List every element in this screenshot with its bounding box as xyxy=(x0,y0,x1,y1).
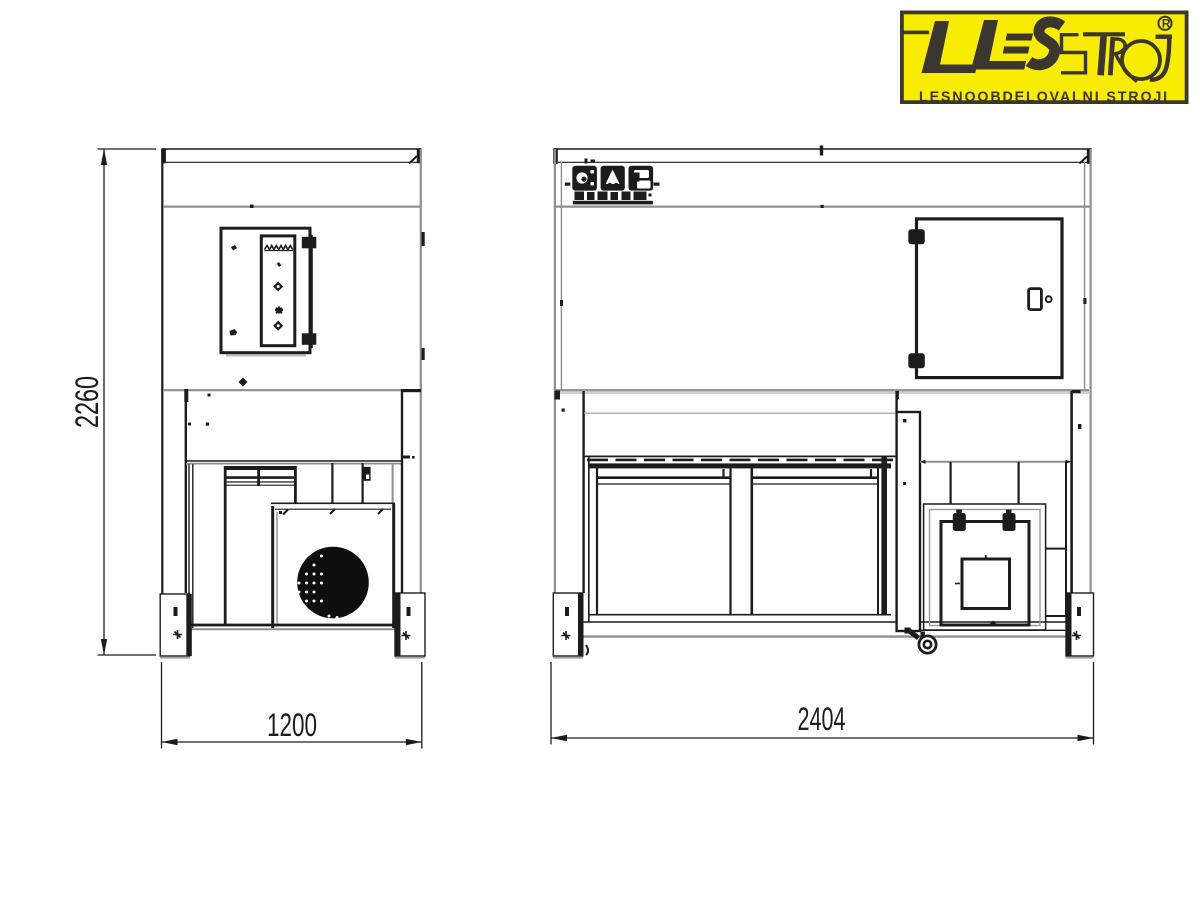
svg-text:1200: 1200 xyxy=(267,707,317,743)
svg-text:2404: 2404 xyxy=(798,701,846,737)
svg-text:2260: 2260 xyxy=(69,376,105,428)
svg-text:LESNOOBDELOVALNI STROJI: LESNOOBDELOVALNI STROJI xyxy=(919,88,1169,105)
svg-text:R: R xyxy=(1162,17,1171,31)
